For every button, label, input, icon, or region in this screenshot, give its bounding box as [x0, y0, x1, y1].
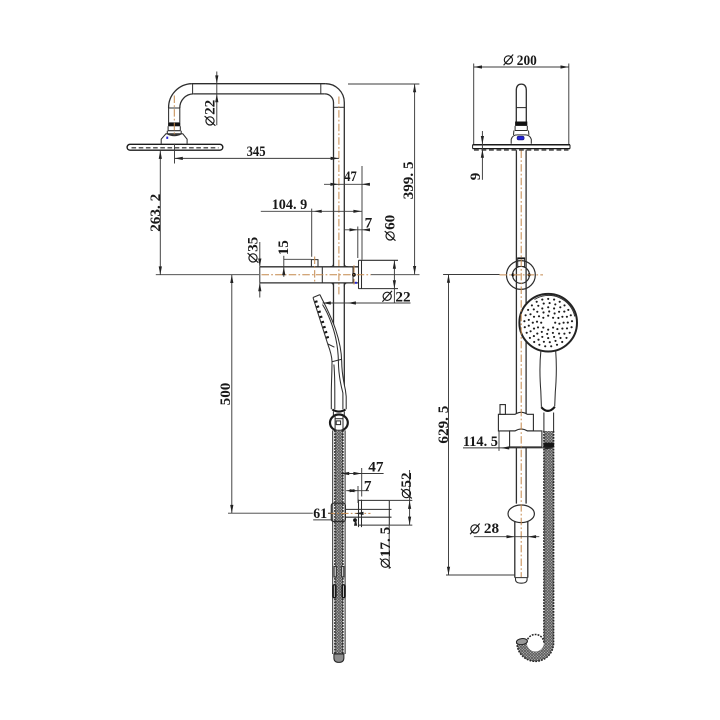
- svg-text:345: 345: [247, 143, 266, 160]
- svg-text:28: 28: [484, 520, 500, 537]
- svg-text:22: 22: [202, 100, 219, 115]
- svg-text:399. 5: 399. 5: [400, 161, 417, 199]
- svg-text:200: 200: [517, 52, 537, 69]
- svg-text:17. 5: 17. 5: [377, 526, 394, 557]
- svg-text:500: 500: [217, 382, 234, 405]
- svg-text:114. 5: 114. 5: [463, 433, 498, 450]
- svg-text:22: 22: [395, 289, 410, 306]
- svg-text:52: 52: [398, 472, 415, 487]
- svg-text:15: 15: [275, 240, 292, 256]
- svg-text:60: 60: [382, 214, 399, 230]
- svg-text:61: 61: [313, 505, 327, 522]
- svg-text:7: 7: [364, 477, 372, 494]
- svg-text:47: 47: [368, 459, 384, 476]
- svg-text:35: 35: [245, 236, 262, 252]
- svg-text:9: 9: [467, 172, 484, 180]
- svg-text:7: 7: [365, 214, 373, 231]
- svg-text:104. 9: 104. 9: [272, 196, 308, 213]
- svg-text:629. 5: 629. 5: [435, 405, 452, 443]
- svg-text:47: 47: [344, 168, 357, 185]
- svg-text:263. 2: 263. 2: [147, 194, 164, 232]
